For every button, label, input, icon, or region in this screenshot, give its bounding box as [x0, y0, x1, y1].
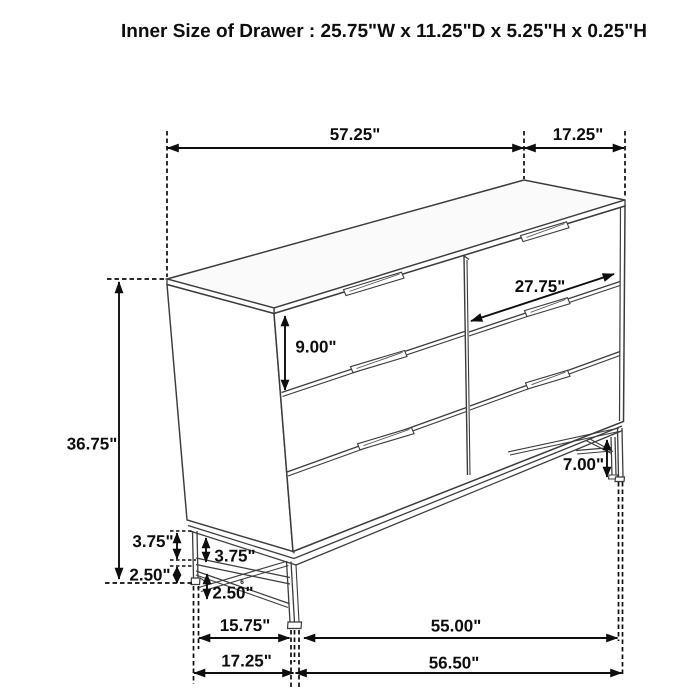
svg-text:Inner Size of Drawer : 25.75"W: Inner Size of Drawer : 25.75"W x 11.25"D…: [121, 21, 647, 42]
svg-text:36.75": 36.75": [67, 435, 118, 454]
svg-text:2.50": 2.50": [129, 566, 170, 585]
svg-text:17.25": 17.25": [553, 125, 604, 144]
svg-text:56.50": 56.50": [429, 654, 480, 673]
svg-text:3.75": 3.75": [132, 532, 173, 551]
svg-text:7.00": 7.00": [563, 455, 604, 474]
svg-text:15.75": 15.75": [220, 616, 271, 635]
svg-text:2.50": 2.50": [212, 584, 253, 603]
svg-text:57.25": 57.25": [330, 125, 381, 144]
svg-text:27.75": 27.75": [515, 277, 566, 296]
svg-text:3.75": 3.75": [214, 547, 255, 566]
svg-text:17.25": 17.25": [221, 652, 272, 671]
svg-text:55.00": 55.00": [431, 617, 482, 636]
svg-text:9.00": 9.00": [295, 338, 336, 357]
